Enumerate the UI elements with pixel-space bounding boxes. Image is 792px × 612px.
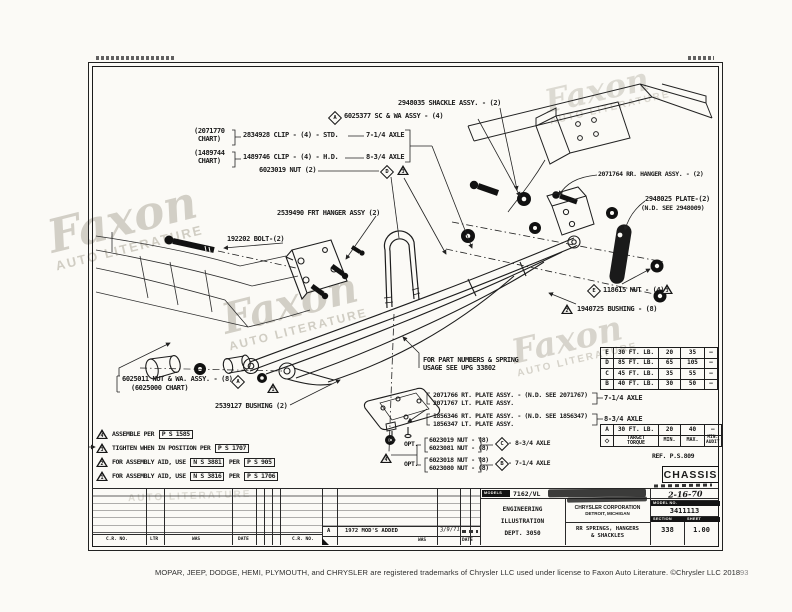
rev-header2-was: WAS <box>418 538 426 543</box>
section-label: SECTION <box>651 517 686 522</box>
sheet-value: 1.00 <box>685 526 718 534</box>
callout-opt-nut-6023019: 6023019 NUT - (8) <box>429 437 489 444</box>
callout-axle-834-mid: 8-3/4 AXLE <box>604 416 642 424</box>
rev-header-was: WAS <box>192 537 200 542</box>
callout-opt-axle-834: - 8-3/4 AXLE <box>508 440 550 447</box>
diamond-symbol-icon: ◇ <box>601 435 614 446</box>
rev-header-cr-no-2: C.R. NO. <box>292 537 314 542</box>
table-row: A30 FT. LB.2040— <box>601 425 722 436</box>
assembly-note-4: ASSEMBLE PER P S 1585 <box>112 430 194 439</box>
table-row: E30 FT. LB.2035— <box>601 348 718 359</box>
callout-sc-wa-assy: 6025377 SC & WA ASSY - (4) <box>344 113 443 121</box>
note-triangle-4: 4 <box>380 453 392 463</box>
note-triangle-3: 3 <box>661 284 673 294</box>
callout-spring-note-2: USAGE SEE UPG 33802 <box>423 365 495 373</box>
note-triangle-3: 3 <box>96 443 108 453</box>
release-date-handwritten: 2-16-70 <box>668 488 703 499</box>
torque-table-upper: E30 FT. LB.2035— D85 FT. LB.65105— C45 F… <box>600 347 718 390</box>
callout-opt-nut-6023018: 6023018 NUT - (8) <box>429 457 489 464</box>
callout-plate-2948025: 2948025 PLATE-(2) <box>645 196 710 204</box>
callout-opt-nut-6023081: 6023081 NUT - (8) <box>429 445 489 452</box>
assembly-note-3: TIGHTEN WHEN IN POSITION PER P S 1707 <box>112 444 250 453</box>
callout-bushing-1940725: 1940725 BUSHING - (8) <box>577 306 657 314</box>
callout-plate-rt-834: 1856346 RT. PLATE ASSY. - (N.D. SEE 1856… <box>433 413 588 420</box>
callout-opt-nut-6023080: 6023080 NUT - (8) <box>429 465 489 472</box>
rev-header-ltr: LTR <box>150 537 158 542</box>
table-row: C45 FT. LB.3555— <box>601 369 718 380</box>
ref-ps809: REF. P.S.809 <box>652 453 694 460</box>
scan-stamp-right <box>688 56 714 60</box>
callout-shackle-assy: 2948035 SHACKLE ASSY. - (2) <box>398 100 501 108</box>
revision-date-handwritten: 3/9/71 <box>440 526 460 533</box>
callout-nut-118615: 118615 NUT - (4) <box>603 287 664 295</box>
scan-stamp-left <box>96 56 174 60</box>
page-number: 93 <box>740 568 749 577</box>
revision-grid-right <box>322 489 480 526</box>
callout-frt-hanger: 2539490 FRT HANGER ASSY (2) <box>277 210 380 218</box>
drawing-subject-2: & SHACKLES <box>565 533 650 539</box>
revision-ltr: A <box>327 528 330 534</box>
trademark-caption: MOPAR, JEEP, DODGE, HEMI, PLYMOUTH, and … <box>155 568 740 577</box>
model-no-label: MODEL NO. <box>651 501 720 506</box>
sheet-label: SHEET <box>685 517 720 522</box>
note-triangle-4: 4 <box>96 429 108 439</box>
rev-header2-date: DATE <box>462 538 473 543</box>
note-triangle-3: 3 <box>397 165 409 175</box>
callout-chart-6025000: (6025000 CHART) <box>131 385 188 393</box>
callout-axle-714-top: 7-1/4 AXLE <box>366 132 404 140</box>
callout-nut-wa-6025011: 6025011 NUT & WA. ASSY. - (8) <box>122 376 233 384</box>
note-triangle-2: 2 <box>561 304 573 314</box>
assembly-note-1: FOR ASSEMBLY AID, USE N S 3816 PER P S 1… <box>112 472 279 481</box>
revision-grid-left <box>92 489 322 534</box>
callout-opt-1: OPT. <box>404 441 418 448</box>
torque-table-lower: A30 FT. LB.2040— ◇ TARGETTORQUE MIN. MAX… <box>600 424 722 447</box>
drawing-subject-1: RR SPRINGS, HANGERS <box>565 526 650 532</box>
callout-chart-1489744: (1489744 CHART) <box>194 150 225 165</box>
table-header-row: ◇ TARGETTORQUE MIN. MAX. MIN.AUDIT <box>601 435 722 446</box>
note-triangle-1: 1 <box>96 471 108 481</box>
callout-bolt-192202: 192202 BOLT-(2) <box>227 236 284 244</box>
company-city: DETROIT, MICHIGAN <box>565 511 650 516</box>
callout-opt-axle-714: - 7-1/4 AXLE <box>508 460 550 467</box>
revision-desc: 1972 MOD'S ADDED <box>345 528 398 534</box>
chassis-stamp: CHASSIS <box>662 466 719 483</box>
engineering-dept-block: ENGINEERING ILLUSTRATION DEPT. 3050 <box>480 504 565 540</box>
callout-plate-lt-714: 2071767 LT. PLATE ASSY. <box>433 400 514 407</box>
callout-rr-hanger: 2071764 RR. HANGER ASSY. - (2) <box>598 171 703 178</box>
callout-plate-rt-714: 2071766 RT. PLATE ASSY. - (N.D. SEE 2071… <box>433 392 588 399</box>
models-label: MODELS <box>482 490 510 497</box>
model-no-value: 3411113 <box>651 507 718 515</box>
handwritten-scribble <box>462 530 478 533</box>
callout-chart-2071770: (2071770 CHART) <box>194 128 225 143</box>
rev-header-cr-no: C.R. NO. <box>106 537 128 542</box>
assembly-note-2: FOR ASSEMBLY AID, USE N S 3881 PER P S 9… <box>112 458 276 467</box>
handwritten-scribble <box>654 483 712 487</box>
callout-axle-714-mid: 7-1/4 AXLE <box>604 395 642 403</box>
callout-plate-lt-834: 1856347 LT. PLATE ASSY. <box>433 421 514 428</box>
callout-axle-834-top: 8-3/4 AXLE <box>366 154 404 162</box>
callout-clip-std: 2834928 CLIP - (4) - STD. <box>243 132 338 140</box>
callout-plate-2948025-nd: (N.D. SEE 2948009) <box>641 205 704 212</box>
table-row: B40 FT. LB.3050— <box>601 379 718 390</box>
callout-bushing-2539127: 2539127 BUSHING (2) <box>215 403 287 411</box>
note-triangle-2: 2 <box>96 457 108 467</box>
rev-header-date: DATE <box>238 537 249 542</box>
callout-clip-hd: 1489746 CLIP - (4) - H.D. <box>243 154 338 162</box>
models-value: 7162/VL <box>513 490 540 498</box>
callout-opt-2: OPT. <box>404 461 418 468</box>
section-value: 338 <box>651 526 684 534</box>
callout-nut-6023019: 6023019 NUT (2) <box>259 167 316 175</box>
note-triangle-1: 1 <box>267 383 279 393</box>
table-row: D85 FT. LB.65105— <box>601 358 718 369</box>
scanned-drawing-page: Faxon AUTO LITERATURE Faxon AUTO LITERAT… <box>0 0 792 612</box>
